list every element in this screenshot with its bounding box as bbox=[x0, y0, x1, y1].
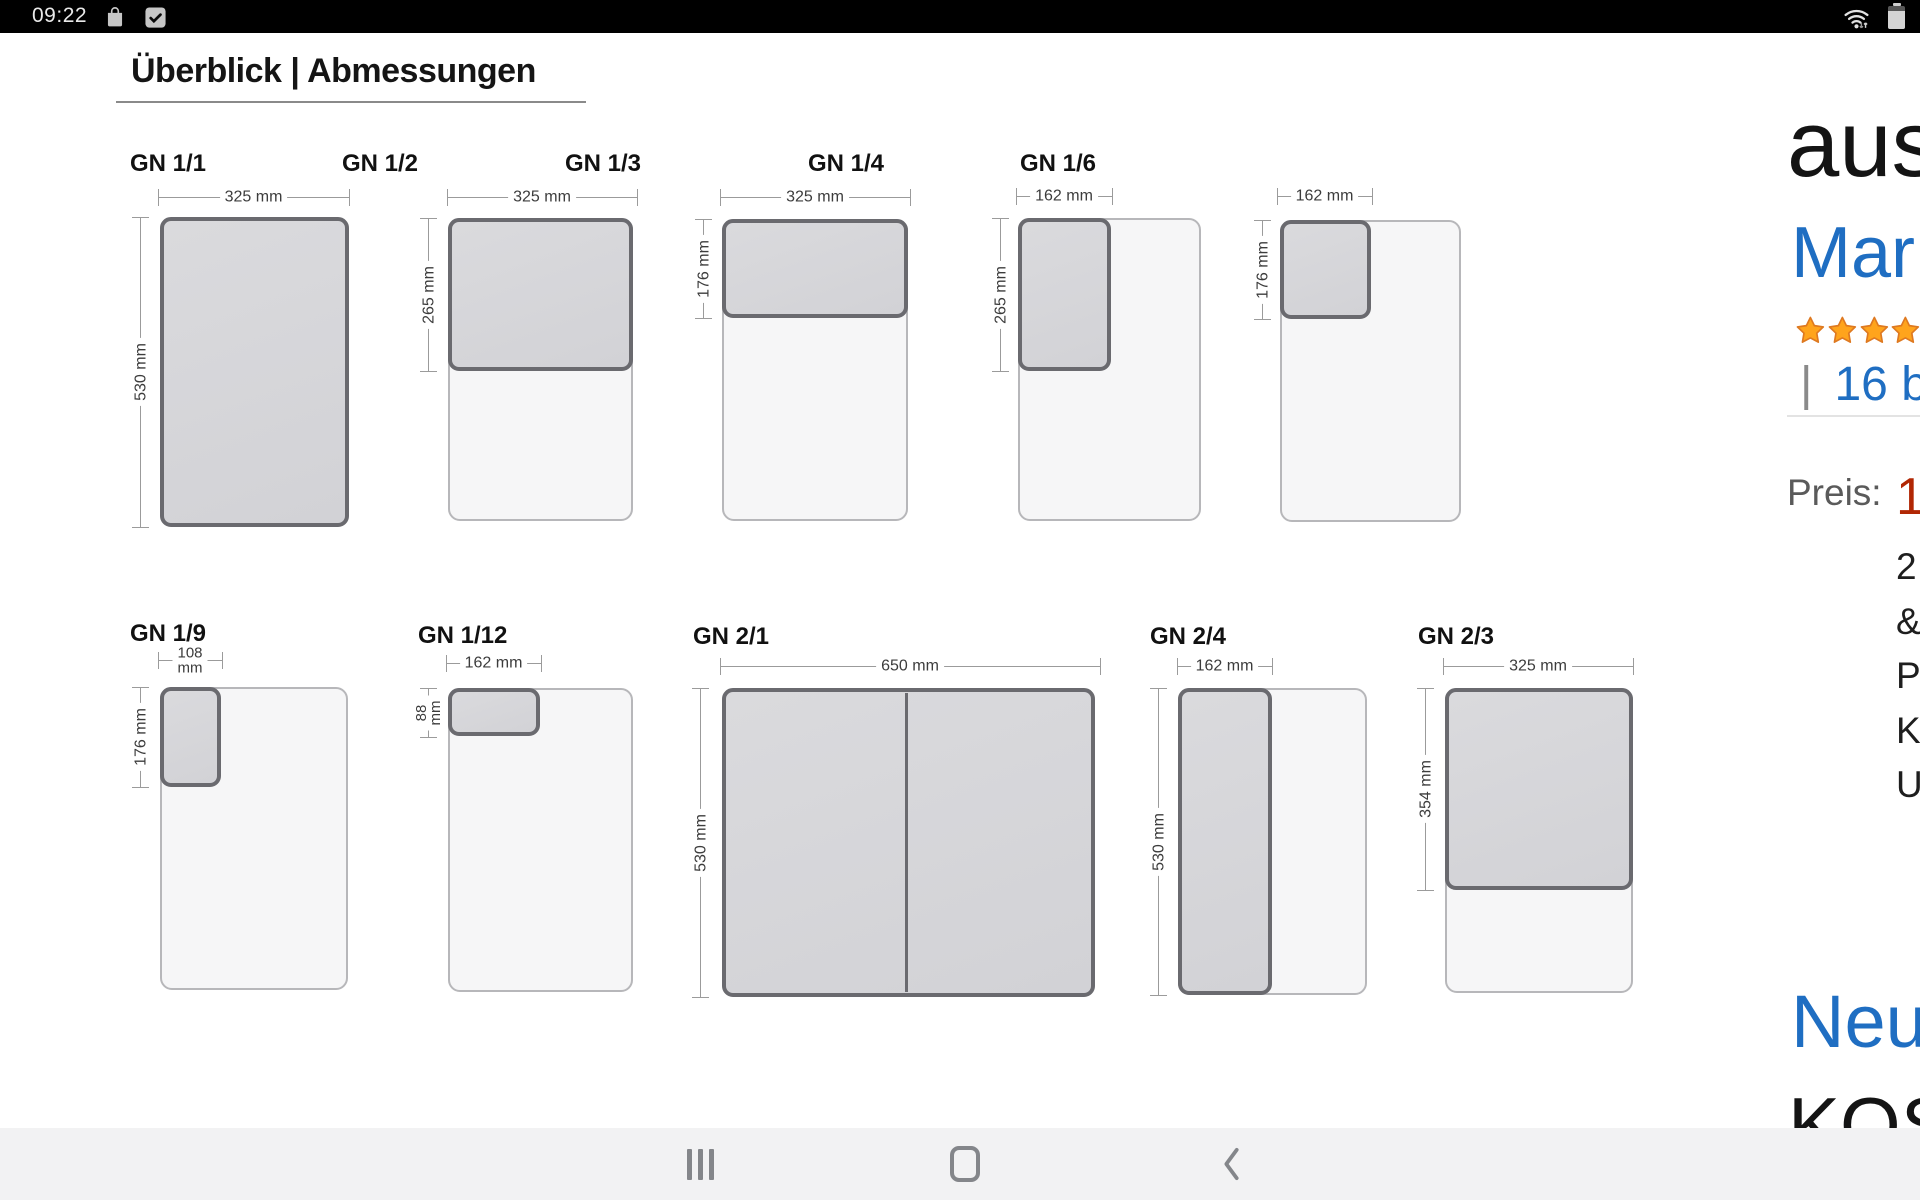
back-icon bbox=[1222, 1147, 1241, 1181]
height-dim-tick bbox=[1417, 688, 1434, 689]
pan-highlight-gn-1-1 bbox=[160, 217, 349, 527]
height-dim-tick bbox=[420, 371, 437, 372]
width-dim-text-gn-1-9: 108 mm bbox=[172, 644, 207, 678]
width-dim-text-gn-1-12: 162 mm bbox=[460, 654, 528, 673]
gn-label-gn-1-6: GN 1/6 bbox=[1020, 150, 1096, 178]
new-offers-link-fragment[interactable]: Neu bbox=[1791, 985, 1920, 1059]
width-dim-tick bbox=[349, 189, 350, 206]
width-dim-tick bbox=[1112, 188, 1113, 205]
width-dim-tick bbox=[446, 655, 447, 672]
star-icon bbox=[1859, 310, 1890, 351]
height-dim-tick bbox=[692, 997, 709, 998]
height-dim-text-gn-1-1: 530 mm bbox=[132, 338, 149, 406]
height-dim-text-gn-1-2: 265 mm bbox=[420, 261, 437, 329]
reviews-row: |16 be bbox=[1800, 361, 1920, 409]
height-dim-text-gn-2-4: 530 mm bbox=[1150, 808, 1167, 876]
pan-highlight-gn-1-9 bbox=[160, 687, 221, 787]
height-dim-text-gn-1-4: 265 mm bbox=[992, 261, 1009, 329]
height-dim-tick bbox=[1150, 995, 1167, 996]
back-button[interactable] bbox=[1213, 1128, 1249, 1200]
home-button[interactable] bbox=[945, 1128, 985, 1200]
pan-divider-gn-2-1 bbox=[905, 693, 908, 992]
diagram-title: Überblick | Abmessungen bbox=[131, 52, 536, 91]
star-icon bbox=[1827, 310, 1858, 351]
width-dim-text-gn-2-3: 325 mm bbox=[1504, 657, 1572, 676]
width-dim-tick bbox=[1177, 658, 1178, 675]
height-dim-text-gn-2-3: 354 mm bbox=[1417, 755, 1434, 823]
bullet-fragment: 2 bbox=[1896, 540, 1920, 595]
reviews-link-fragment[interactable]: 16 be bbox=[1834, 358, 1920, 411]
price-label: Preis: bbox=[1787, 472, 1882, 514]
pan-highlight-gn-2-1 bbox=[722, 688, 1095, 997]
width-dim-text-gn-2-4: 162 mm bbox=[1191, 657, 1259, 676]
width-dim-text-gn-1-6: 162 mm bbox=[1291, 187, 1359, 206]
gn-label-gn-2-1: GN 2/1 bbox=[693, 623, 769, 651]
width-dim-text-gn-1-3: 325 mm bbox=[781, 188, 849, 207]
bullet-fragment: P bbox=[1896, 649, 1920, 704]
height-dim-tick bbox=[1254, 319, 1271, 320]
width-dim-tick bbox=[720, 658, 721, 675]
bullet-fragment: & bbox=[1896, 595, 1920, 650]
recents-icon bbox=[687, 1149, 714, 1180]
height-dim-tick bbox=[132, 787, 149, 788]
pan-highlight-gn-1-4 bbox=[1018, 218, 1111, 371]
height-dim-text-gn-1-12: 88 mm bbox=[413, 695, 444, 730]
height-dim-tick bbox=[692, 688, 709, 689]
width-dim-tick bbox=[1100, 658, 1101, 675]
tablet-screen: 09:22 Überblick | Abmessungen bbox=[0, 0, 1920, 1200]
height-dim-tick bbox=[992, 218, 1009, 219]
reviews-separator: | bbox=[1800, 358, 1812, 411]
bullet-fragment: K bbox=[1896, 704, 1920, 759]
height-dim-text-gn-2-1: 530 mm bbox=[692, 809, 709, 877]
width-dim-tick bbox=[910, 189, 911, 206]
width-dim-tick bbox=[222, 652, 223, 669]
width-dim-text-gn-1-4: 162 mm bbox=[1030, 187, 1098, 206]
product-title-fragment: aus bbox=[1787, 97, 1920, 191]
product-image-diagram[interactable]: Überblick | Abmessungen GN 1/1325 mm530 … bbox=[0, 0, 1740, 1128]
gn-label-gn-2-4: GN 2/4 bbox=[1150, 623, 1226, 651]
height-dim-tick bbox=[132, 527, 149, 528]
price-value-fragment: 1 bbox=[1896, 467, 1920, 527]
bullet-list: 2 & P K U bbox=[1896, 540, 1920, 813]
height-dim-tick bbox=[695, 219, 712, 220]
width-dim-tick bbox=[637, 189, 638, 206]
pan-highlight-gn-2-4 bbox=[1178, 688, 1272, 995]
height-dim-tick bbox=[420, 218, 437, 219]
height-dim-tick bbox=[695, 318, 712, 319]
width-dim-text-gn-2-1: 650 mm bbox=[876, 657, 944, 676]
width-dim-tick bbox=[1633, 658, 1634, 675]
star-icon bbox=[1890, 310, 1920, 351]
battery-icon bbox=[1888, 3, 1905, 29]
height-dim-text-gn-1-6: 176 mm bbox=[1254, 236, 1271, 304]
title-underline bbox=[116, 101, 586, 103]
gn-label-gn-1-12: GN 1/12 bbox=[418, 622, 507, 650]
pan-highlight-gn-1-12 bbox=[448, 688, 540, 736]
width-dim-tick bbox=[158, 652, 159, 669]
width-dim-tick bbox=[1272, 658, 1273, 675]
home-icon bbox=[950, 1146, 980, 1182]
width-dim-text-gn-1-1: 325 mm bbox=[220, 188, 288, 207]
height-dim-tick bbox=[1417, 890, 1434, 891]
height-dim-tick bbox=[132, 217, 149, 218]
width-dim-tick bbox=[158, 189, 159, 206]
height-dim-tick bbox=[132, 687, 149, 688]
recents-button[interactable] bbox=[680, 1128, 720, 1200]
height-dim-tick bbox=[992, 371, 1009, 372]
height-dim-tick bbox=[1150, 688, 1167, 689]
gn-label-gn-2-3: GN 2/3 bbox=[1418, 623, 1494, 651]
gn-label-gn-1-4: GN 1/4 bbox=[808, 150, 884, 178]
wifi-icon bbox=[1843, 6, 1870, 35]
height-dim-text-gn-1-3: 176 mm bbox=[695, 235, 712, 303]
width-dim-tick bbox=[1016, 188, 1017, 205]
gn-label-gn-1-3: GN 1/3 bbox=[565, 150, 641, 178]
height-dim-tick bbox=[420, 688, 437, 689]
width-dim-tick bbox=[1372, 188, 1373, 205]
height-dim-tick bbox=[1254, 220, 1271, 221]
height-dim-text-gn-1-9: 176 mm bbox=[132, 703, 149, 771]
gn-label-gn-1-2: GN 1/2 bbox=[342, 150, 418, 178]
width-dim-tick bbox=[541, 655, 542, 672]
pan-highlight-gn-2-3 bbox=[1445, 688, 1633, 890]
width-dim-tick bbox=[1277, 188, 1278, 205]
width-dim-tick bbox=[720, 189, 721, 206]
gn-label-gn-1-1: GN 1/1 bbox=[130, 150, 206, 178]
info-divider bbox=[1787, 415, 1920, 417]
android-nav-bar bbox=[0, 1128, 1920, 1200]
width-dim-tick bbox=[1443, 658, 1444, 675]
star-icon bbox=[1795, 310, 1826, 351]
bullet-fragment: U bbox=[1896, 758, 1920, 813]
pan-highlight-gn-1-6 bbox=[1280, 220, 1371, 319]
pan-highlight-gn-1-3 bbox=[722, 219, 908, 318]
width-dim-text-gn-1-2: 325 mm bbox=[508, 188, 576, 207]
pan-highlight-gn-1-2 bbox=[448, 218, 633, 371]
height-dim-tick bbox=[420, 737, 437, 738]
brand-link-fragment[interactable]: Mar bbox=[1791, 217, 1915, 289]
width-dim-tick bbox=[447, 189, 448, 206]
rating-stars[interactable] bbox=[1795, 310, 1920, 352]
